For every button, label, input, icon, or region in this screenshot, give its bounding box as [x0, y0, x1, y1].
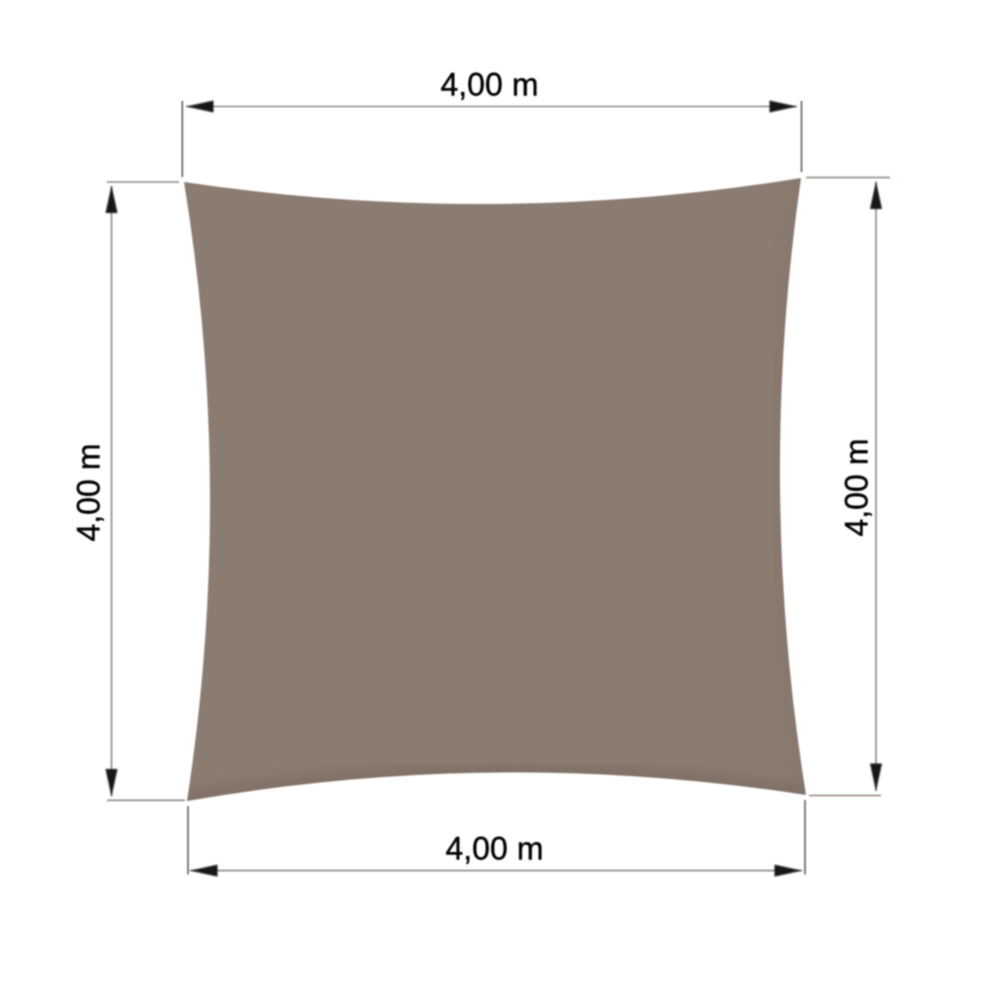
svg-text:4,00 m: 4,00 m [839, 438, 875, 536]
svg-text:4,00 m: 4,00 m [71, 443, 107, 541]
svg-text:4,00 m: 4,00 m [445, 831, 543, 867]
svg-text:4,00 m: 4,00 m [440, 67, 538, 103]
